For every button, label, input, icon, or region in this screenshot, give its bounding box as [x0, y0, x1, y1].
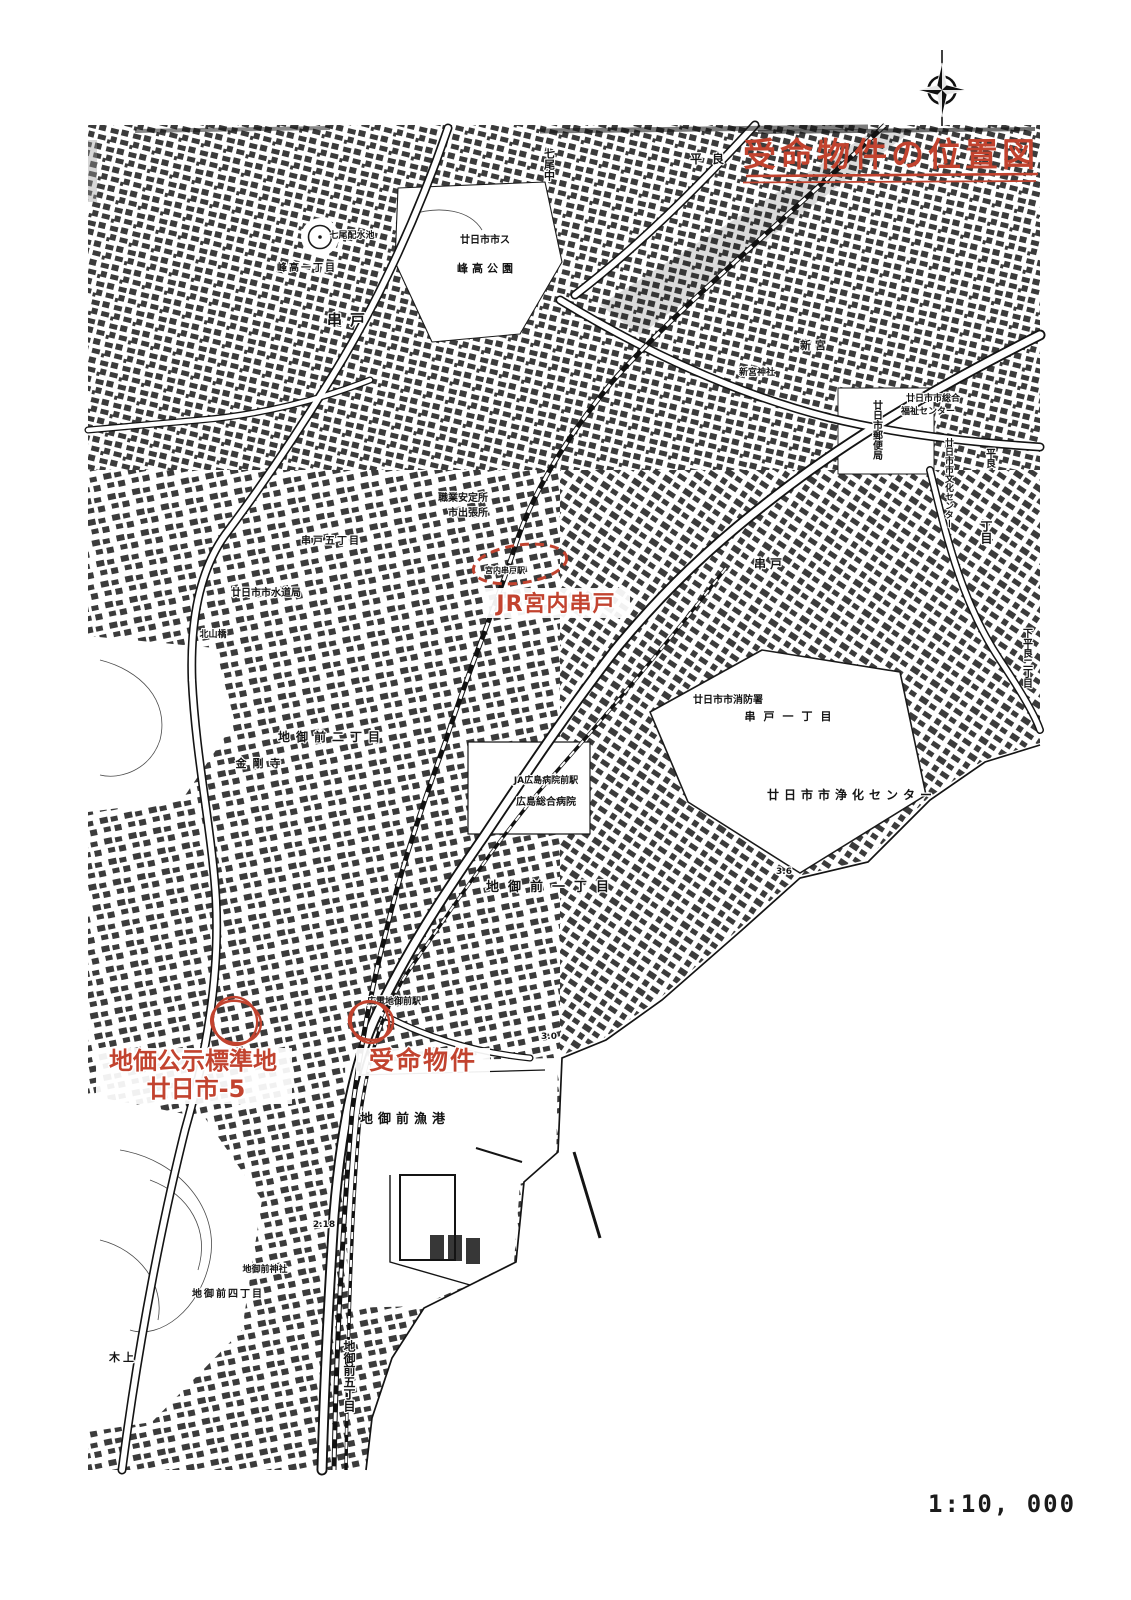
map-label: 串戸一丁目 [745, 709, 840, 723]
page-title: 受命物件の位置図 [743, 135, 1039, 174]
map-label: JA広島病院前駅 [513, 774, 579, 786]
map-label: 串戸 [327, 311, 373, 329]
map-label: 地御前二丁目 [278, 729, 386, 744]
map-label: 七尾配水池 [329, 229, 374, 241]
map-label: 地御前四丁目 [192, 1287, 264, 1300]
map-label: 七尾中 [543, 147, 557, 182]
map-label: 廿日市市ス [460, 233, 510, 246]
map-label: 北山橋 [199, 628, 227, 640]
map-label: 地御前五丁目 [342, 1339, 356, 1413]
map-label: 3.0 [541, 1032, 557, 1042]
map-label: 廿日市市文化センター [943, 437, 955, 528]
landprice-label-line1: 地価公示標準地 [109, 1047, 277, 1075]
map-label: 木上 [108, 1350, 137, 1364]
property-label: 受命物件 [369, 1046, 477, 1075]
map-label: 地御前一丁目 [486, 879, 618, 895]
map-label: 丁目 [979, 520, 993, 545]
map-label: 2.18 [313, 1220, 335, 1230]
compass-rose-icon [918, 50, 966, 126]
dock-basin [400, 1175, 455, 1260]
map-label: 串戸 [754, 556, 786, 571]
map-label: 平良 [690, 151, 734, 166]
map-label: 新宮 [800, 338, 830, 352]
map-label: 職業安定所 [438, 491, 488, 504]
scale-label: 1:10, 000 [928, 1490, 1076, 1518]
map-label: 峰高公園 [457, 261, 517, 275]
map-label: 広島総合病院 [516, 795, 576, 808]
map-label: 地御前漁港 [360, 1111, 450, 1127]
map-label: 廿日市市総合 [906, 392, 961, 404]
station-label: JR宮内串戸 [494, 591, 615, 617]
map-label: 福祉センター [900, 405, 955, 417]
map-label: 地御前神社 [242, 1263, 287, 1275]
landprice-label-line2: 廿日市-5 [147, 1075, 246, 1103]
map-label: 金剛寺 [235, 756, 287, 770]
map-label: 新宮神社 [739, 366, 775, 378]
map-label: 廿日市市浄化センター [767, 787, 937, 802]
map-label: 3.6 [776, 867, 792, 877]
scanned-map-page: 串戸七尾配水池峰高一丁目廿日市市ス峰高公園七尾中平良新宮神社新宮廿日市郵便局廿日… [0, 0, 1131, 1600]
map-label: 廿日市市水道局 [231, 586, 301, 599]
map-label: 平良 [984, 448, 996, 469]
map-canvas: 串戸七尾配水池峰高一丁目廿日市市ス峰高公園七尾中平良新宮神社新宮廿日市郵便局廿日… [0, 0, 1131, 1600]
map-label: 下平良二丁目 [1021, 628, 1033, 689]
map-label: 串戸五丁目 [301, 534, 361, 547]
map-label: 廿日市市消防署 [693, 693, 763, 706]
map-label: 峰高一丁目 [277, 261, 337, 274]
map-label: 宮内串戸駅 [485, 565, 526, 575]
map-label: 市出張所 [448, 506, 488, 519]
